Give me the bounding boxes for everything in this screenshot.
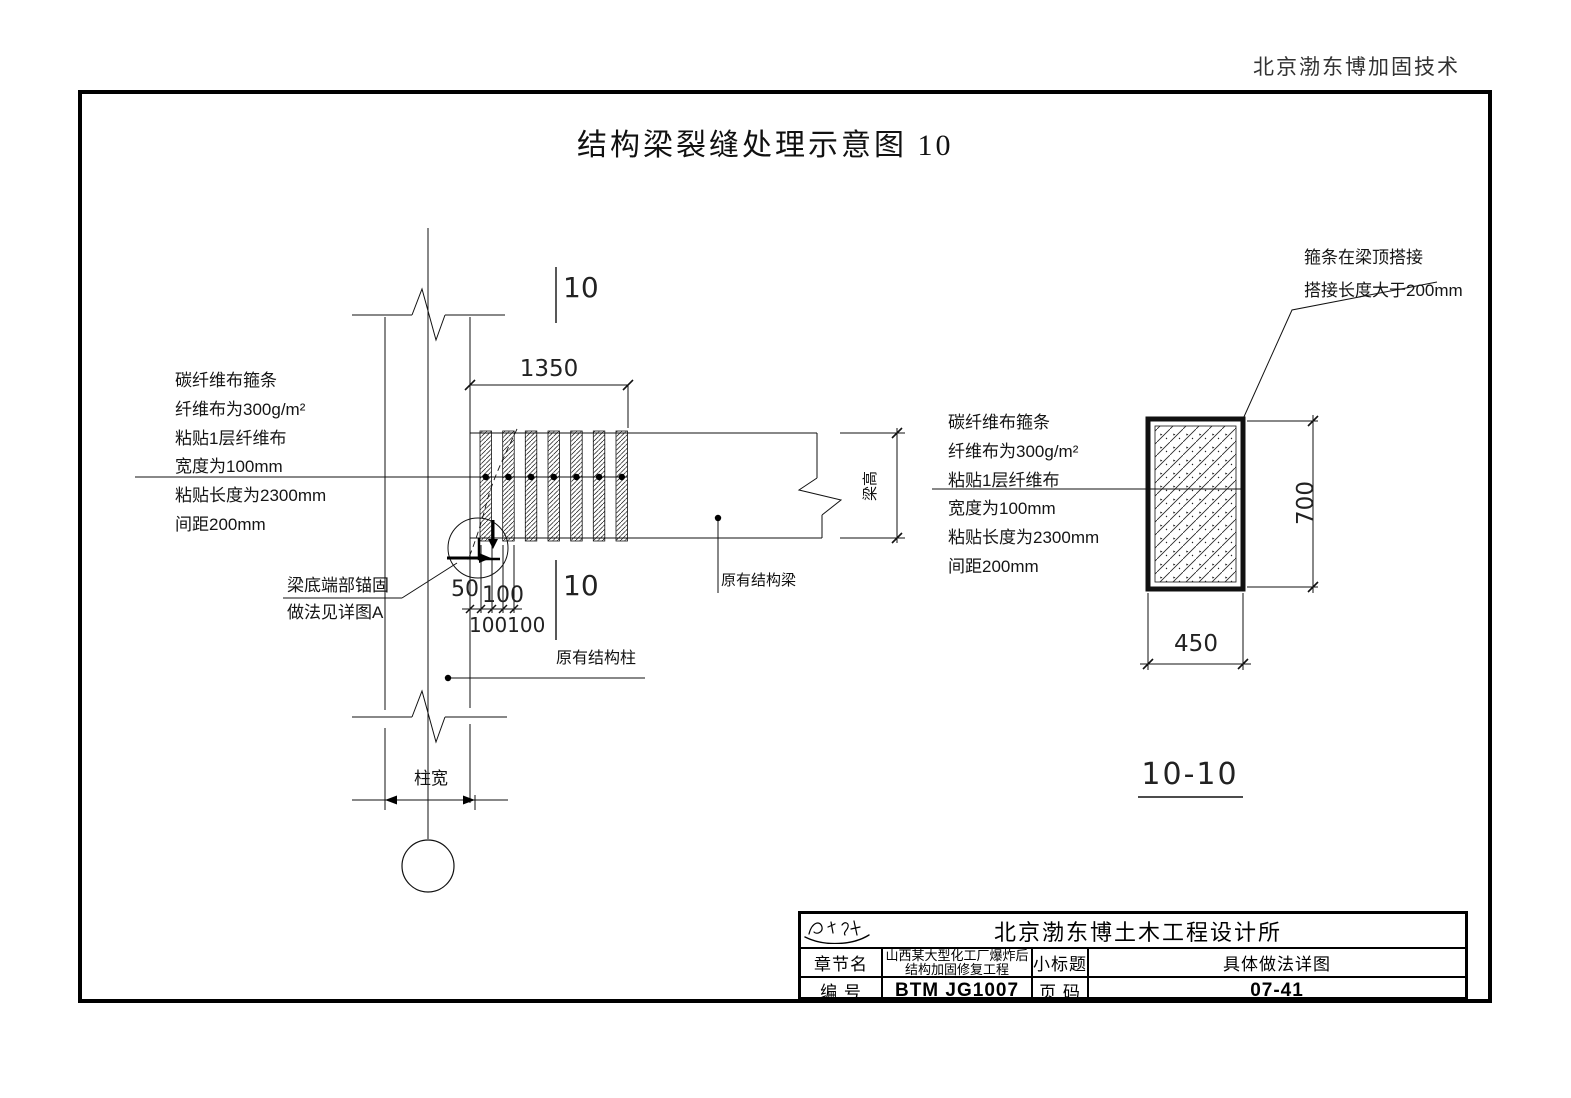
right-note: 碳纤维布箍条 纤维布为300g/m² 粘贴1层纤维布 宽度为100mm 粘贴长度… bbox=[948, 409, 1099, 582]
note-line: 宽度为100mm bbox=[175, 453, 326, 482]
page-value: 07-41 bbox=[1087, 976, 1465, 1003]
column-width-label: 柱宽 bbox=[414, 770, 448, 787]
note-line: 碳纤维布箍条 bbox=[175, 367, 326, 396]
note-line: 粘贴1层纤维布 bbox=[175, 425, 326, 454]
grid-bubble bbox=[402, 840, 454, 892]
number-value: BTM JG1007 bbox=[881, 976, 1031, 1003]
dim-label-50: 50 bbox=[451, 579, 479, 601]
project-line1: 山西某大型化工厂爆炸后 bbox=[885, 949, 1028, 963]
dim-label-450: 450 bbox=[1156, 633, 1236, 656]
note-line: 粘贴长度为2300mm bbox=[948, 524, 1099, 553]
company-logo bbox=[801, 914, 876, 944]
beam-height-label: 梁高 bbox=[848, 464, 892, 508]
lap-note-line1: 箍条在梁顶搭接 bbox=[1304, 249, 1423, 266]
project-name: 山西某大型化工厂爆炸后 结构加固修复工程 bbox=[881, 947, 1031, 976]
section-title: 10-10 bbox=[1130, 760, 1250, 790]
dim-label-700: 700 bbox=[1284, 481, 1328, 525]
title-block-company-row: 北京渤东博土木工程设计所 bbox=[801, 914, 1465, 947]
note-line: 宽度为100mm bbox=[948, 495, 1099, 524]
drawing-sheet: 北京渤东博加固技术 结构梁裂缝处理示意图 10 bbox=[0, 0, 1571, 1098]
anchor-note-line2: 做法见详图A bbox=[287, 604, 383, 621]
page-label: 页 码 bbox=[1031, 976, 1087, 1003]
lap-note-line2: 搭接长度大于200mm bbox=[1304, 282, 1463, 299]
anchor-note-line1: 梁底端部锚固 bbox=[287, 577, 389, 594]
subtitle-value: 具体做法详图 bbox=[1087, 947, 1465, 976]
dim-label-100: 100 bbox=[482, 585, 524, 607]
note-line: 纤维布为300g/m² bbox=[175, 396, 326, 425]
section-marker-top: 10 bbox=[563, 274, 599, 302]
existing-column-label: 原有结构柱 bbox=[556, 651, 636, 667]
company-name: 北京渤东博土木工程设计所 bbox=[994, 915, 1282, 947]
section-hatch bbox=[1155, 426, 1236, 582]
cfrp-strips bbox=[480, 431, 628, 541]
section-marker-bottom: 10 bbox=[563, 572, 599, 600]
note-line: 碳纤维布箍条 bbox=[948, 409, 1099, 438]
number-label: 编 号 bbox=[801, 976, 881, 1003]
dim-1350 bbox=[470, 385, 628, 428]
note-line: 粘贴1层纤维布 bbox=[948, 467, 1099, 496]
column-width-dim bbox=[352, 795, 508, 810]
subtitle-label: 小标题 bbox=[1031, 947, 1087, 976]
note-line: 间距200mm bbox=[175, 511, 326, 540]
dim-label-100100: 100100 bbox=[469, 615, 545, 635]
lap-leader bbox=[1243, 282, 1437, 419]
note-line: 间距200mm bbox=[948, 553, 1099, 582]
title-block: 北京渤东博土木工程设计所 章节名 山西某大型化工厂爆炸后 结构加固修复工程 小标… bbox=[798, 911, 1468, 1000]
note-line: 纤维布为300g/m² bbox=[948, 438, 1099, 467]
project-line2: 结构加固修复工程 bbox=[885, 963, 1028, 977]
chapter-label: 章节名 bbox=[801, 947, 881, 976]
note-line: 粘贴长度为2300mm bbox=[175, 482, 326, 511]
dim-label-1350: 1350 bbox=[509, 358, 589, 381]
existing-beam-label: 原有结构梁 bbox=[721, 573, 796, 588]
left-note: 碳纤维布箍条 纤维布为300g/m² 粘贴1层纤维布 宽度为100mm 粘贴长度… bbox=[175, 367, 326, 540]
